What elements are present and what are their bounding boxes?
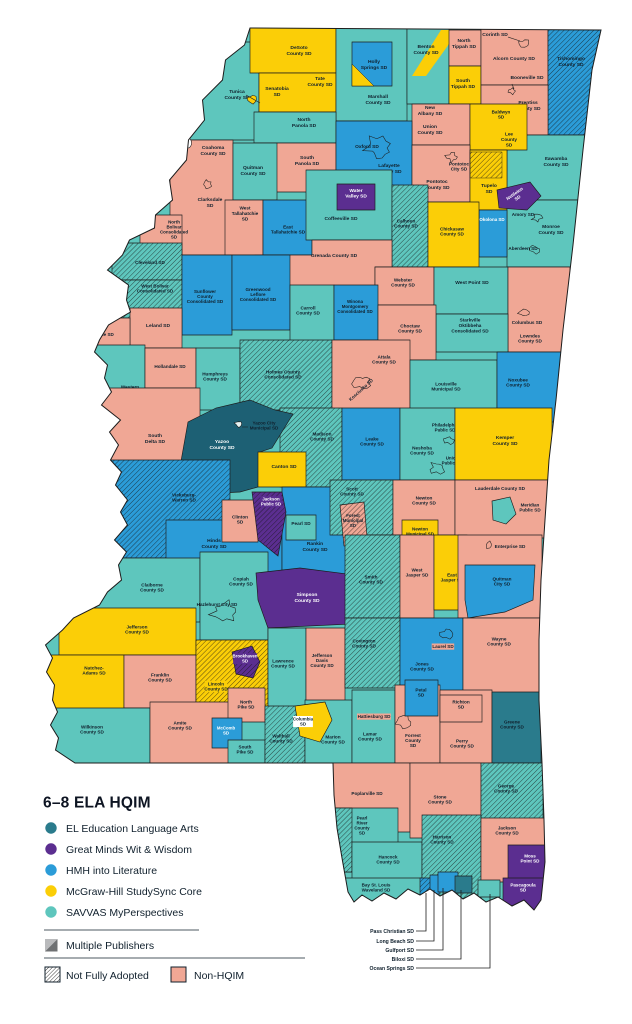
svg-text:HumphreysCounty SD: HumphreysCounty SD: [202, 371, 228, 381]
svg-text:West Point SD: West Point SD: [455, 280, 489, 286]
svg-text:ChickasawCounty SD: ChickasawCounty SD: [440, 226, 465, 236]
svg-text:PontotocCity SD: PontotocCity SD: [449, 161, 470, 171]
svg-text:Grenada County SD: Grenada County SD: [311, 253, 358, 259]
svg-text:Hattiesburg SD: Hattiesburg SD: [358, 714, 392, 719]
svg-text:Long Beach SD: Long Beach SD: [376, 939, 414, 945]
svg-text:Laurel SD: Laurel SD: [432, 644, 454, 649]
svg-text:Hazlehurst City SD: Hazlehurst City SD: [197, 602, 238, 607]
svg-text:WebsterCounty SD: WebsterCounty SD: [391, 277, 415, 287]
svg-text:Oxford SD: Oxford SD: [355, 144, 379, 150]
svg-text:McGraw-Hill StudySync Core: McGraw-Hill StudySync Core: [66, 886, 202, 898]
svg-text:FranklinCounty SD: FranklinCounty SD: [148, 672, 172, 682]
svg-text:HarrisonCounty SD: HarrisonCounty SD: [430, 834, 454, 844]
svg-text:West BolivarConsolidated SD: West BolivarConsolidated SD: [137, 283, 174, 293]
svg-text:Corinth SD: Corinth SD: [482, 32, 508, 38]
svg-text:ItawambaCounty SD: ItawambaCounty SD: [543, 156, 569, 168]
svg-text:CoahomaCounty SD: CoahomaCounty SD: [200, 145, 226, 157]
svg-text:Natchez-Adams SD: Natchez-Adams SD: [82, 665, 106, 675]
svg-text:Not Fully Adopted: Not Fully Adopted: [66, 970, 149, 982]
svg-text:Ocean Springs SD: Ocean Springs SD: [370, 966, 415, 972]
svg-text:Bay St. LouisWaveland SD: Bay St. LouisWaveland SD: [362, 882, 391, 892]
svg-text:JacksonCounty SD: JacksonCounty SD: [495, 825, 519, 835]
svg-text:Holmes CountyConsolidated SD: Holmes CountyConsolidated SD: [264, 369, 302, 379]
svg-text:QuitmanCounty SD: QuitmanCounty SD: [240, 165, 266, 177]
svg-text:Booneville SD: Booneville SD: [511, 75, 544, 81]
svg-text:Alcorn County SD: Alcorn County SD: [493, 56, 535, 62]
svg-text:Pass Christian SD: Pass Christian SD: [370, 929, 414, 935]
svg-text:Poplarville SD: Poplarville SD: [351, 791, 383, 796]
svg-text:CovingtonCounty SD: CovingtonCounty SD: [352, 638, 376, 648]
svg-text:Great Minds Wit & Wisdom: Great Minds Wit & Wisdom: [66, 844, 192, 856]
svg-text:Hollandale SD: Hollandale SD: [154, 364, 186, 369]
svg-text:PhiladelphiaPublic SD: PhiladelphiaPublic SD: [432, 422, 459, 432]
svg-text:TishomingoCounty SD: TishomingoCounty SD: [557, 56, 585, 68]
svg-text:6–8 ELA HQIM: 6–8 ELA HQIM: [43, 795, 151, 812]
svg-text:Aberdeen SD: Aberdeen SD: [508, 246, 538, 251]
svg-text:Leland SD: Leland SD: [146, 323, 170, 329]
svg-text:Columbus SD: Columbus SD: [512, 320, 543, 325]
svg-text:Vicksburg-Warren SD: Vicksburg-Warren SD: [172, 492, 196, 502]
svg-text:NeshobaCounty SD: NeshobaCounty SD: [410, 445, 434, 455]
svg-text:MarshallCounty SD: MarshallCounty SD: [365, 94, 391, 106]
svg-text:NoxubeeCounty SD: NoxubeeCounty SD: [506, 377, 530, 387]
svg-text:Non-HQIM: Non-HQIM: [194, 970, 244, 982]
svg-text:MeridianPublic SD: MeridianPublic SD: [519, 502, 541, 512]
svg-text:JacksonPublic SD: JacksonPublic SD: [261, 497, 281, 507]
svg-text:Gulfport SD: Gulfport SD: [385, 948, 414, 954]
svg-text:MadisonCounty SD: MadisonCounty SD: [310, 431, 334, 441]
svg-text:WilkinsonCounty SD: WilkinsonCounty SD: [80, 724, 104, 734]
svg-text:Amory SD: Amory SD: [512, 212, 535, 217]
svg-text:QuitmanCity SD: QuitmanCity SD: [493, 576, 512, 586]
svg-text:Coffeeville SD: Coffeeville SD: [325, 216, 358, 222]
svg-text:Multiple Publishers: Multiple Publishers: [66, 940, 154, 952]
svg-text:Okolona SD: Okolona SD: [479, 217, 505, 222]
svg-text:EL Education Language Arts: EL Education Language Arts: [66, 823, 199, 835]
svg-text:JeffersonCounty SD: JeffersonCounty SD: [125, 624, 149, 634]
svg-text:HancockCounty SD: HancockCounty SD: [376, 854, 400, 864]
svg-text:ChoctawCounty SD: ChoctawCounty SD: [398, 323, 422, 333]
svg-text:ClaiborneCounty SD: ClaiborneCounty SD: [140, 582, 164, 592]
svg-text:CalhounCounty SD: CalhounCounty SD: [394, 218, 418, 228]
svg-text:Pearl SD: Pearl SD: [291, 521, 311, 526]
svg-text:SAVVAS MyPerspectives: SAVVAS MyPerspectives: [66, 907, 183, 919]
svg-text:Biloxi SD: Biloxi SD: [392, 957, 415, 963]
svg-text:LowndesCounty SD: LowndesCounty SD: [518, 333, 542, 343]
svg-text:Lauderdale County SD: Lauderdale County SD: [475, 486, 526, 491]
svg-text:Cleveland SD: Cleveland SD: [135, 260, 165, 265]
svg-text:Canton SD: Canton SD: [271, 464, 297, 470]
svg-text:HMH into Literature: HMH into Literature: [66, 865, 157, 877]
svg-text:Enterprise SD: Enterprise SD: [495, 544, 526, 549]
svg-text:Yazoo CityMunicipal SD: Yazoo CityMunicipal SD: [250, 420, 279, 430]
svg-text:SimpsonCounty SD: SimpsonCounty SD: [294, 592, 320, 604]
svg-text:LawrenceCounty SD: LawrenceCounty SD: [271, 658, 295, 668]
